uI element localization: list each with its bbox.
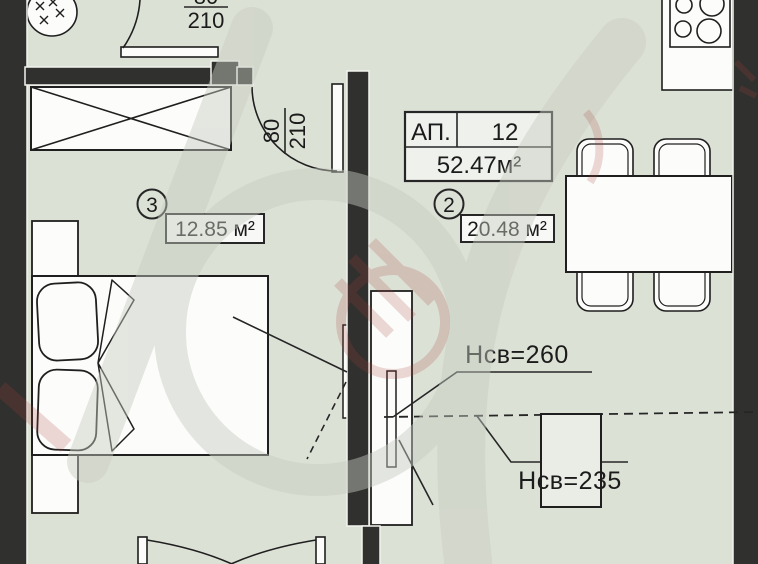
door-height-label: 210 <box>285 113 310 150</box>
height-label-235: Нсв=235 <box>518 467 622 495</box>
apartment-total-area: 52.47м² <box>437 152 522 179</box>
left-wall <box>0 0 27 564</box>
room-3-number: 3 <box>146 194 158 217</box>
door-width-label: 80 <box>259 119 284 143</box>
top-wall <box>25 67 215 85</box>
room-2-number: 2 <box>443 194 455 217</box>
pocket-door-panel <box>387 371 396 467</box>
apartment-label: АП. <box>411 119 451 146</box>
right-wall <box>733 0 758 564</box>
apartment-info-table: АП. 12 52.47м² <box>405 112 552 181</box>
door-height-label: 210 <box>188 8 225 33</box>
room-2-area-box: 20.48 м² <box>461 215 554 242</box>
dining-table-icon <box>566 176 732 272</box>
floor-plan-canvas: Нсв=260 Нсв=235 АП. 12 52.47м² 2 20.48 м… <box>0 0 758 564</box>
balcony-door-jamb-left <box>138 537 147 564</box>
room-3-area-box: 12.85 м² <box>166 214 264 243</box>
door-jamb <box>237 67 253 85</box>
pillow-icon <box>37 369 99 451</box>
bedroom-door-leaf <box>332 84 343 172</box>
door-jamb <box>211 61 239 85</box>
room-2-area: 20.48 м² <box>467 218 547 241</box>
entry-door-leaf <box>121 47 218 57</box>
balcony-door-jamb-right <box>316 537 325 564</box>
floor-plan-drawing: Нсв=260 Нсв=235 АП. 12 52.47м² 2 20.48 м… <box>0 0 758 564</box>
height-label-260: Нсв=260 <box>465 341 569 369</box>
partition-wall <box>347 71 369 526</box>
apartment-number: 12 <box>492 119 519 146</box>
pillow-icon <box>36 281 99 361</box>
room-3-area: 12.85 м² <box>175 218 255 241</box>
partition-wall-lower <box>362 526 380 564</box>
